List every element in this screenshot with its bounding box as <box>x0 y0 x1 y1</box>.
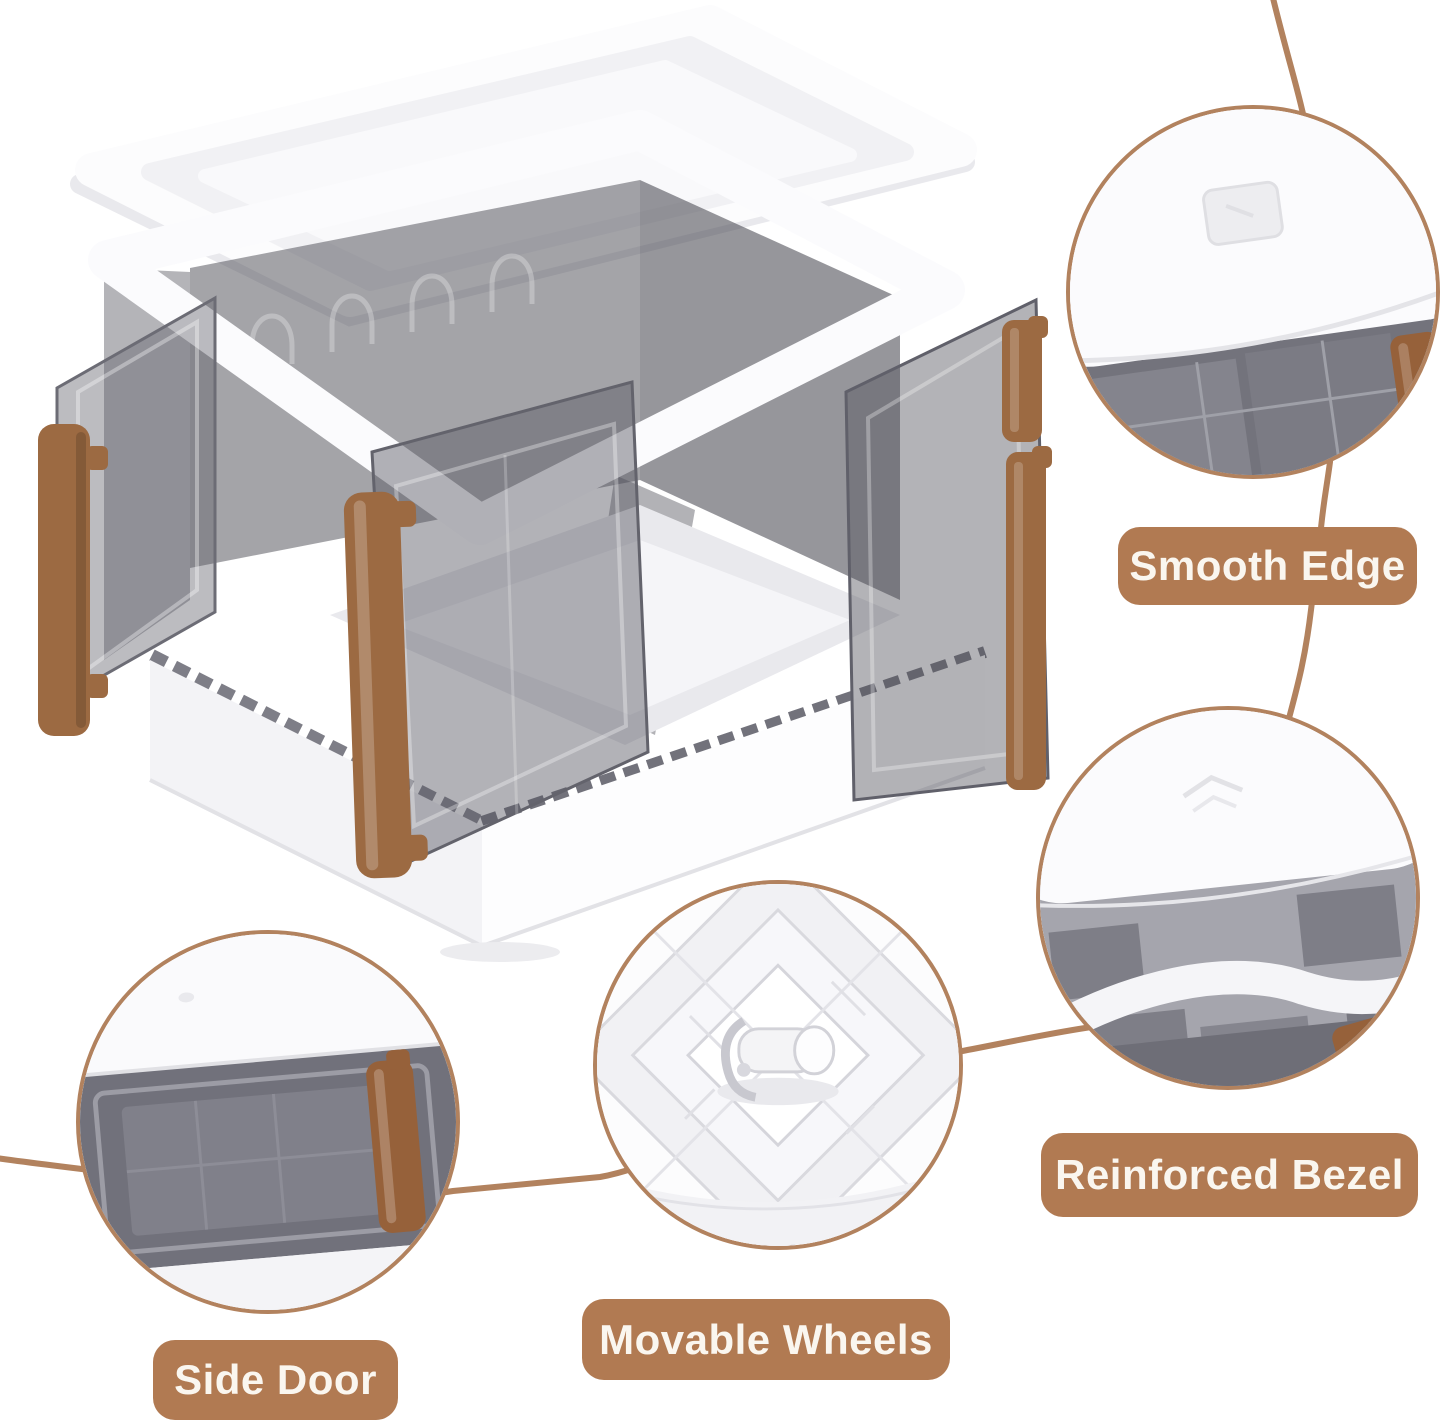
feature-label-movable-wheels: Movable Wheels <box>582 1299 950 1380</box>
right-door-handle-upper <box>1002 320 1042 442</box>
movable-wheels-photo <box>597 884 959 1246</box>
feature-label-smooth-edge: Smooth Edge <box>1118 527 1417 605</box>
reinforced-bezel-photo <box>1040 710 1416 1086</box>
product-feature-image: Smooth Edge Reinforced Bezel Movable Whe… <box>0 0 1445 1424</box>
base-shadow <box>440 942 560 962</box>
smooth-edge-photo <box>1070 109 1436 475</box>
callout-photo-movable-wheels <box>593 880 963 1250</box>
callout-photo-side-door <box>76 930 460 1314</box>
side-door-photo <box>80 934 456 1310</box>
feature-label-side-door: Side Door <box>153 1340 398 1420</box>
feature-label-reinforced-bezel: Reinforced Bezel <box>1041 1133 1418 1217</box>
callout-photo-reinforced-bezel <box>1036 706 1420 1090</box>
right-door-handle-lower <box>1006 452 1046 790</box>
callout-photo-smooth-edge <box>1066 105 1440 479</box>
